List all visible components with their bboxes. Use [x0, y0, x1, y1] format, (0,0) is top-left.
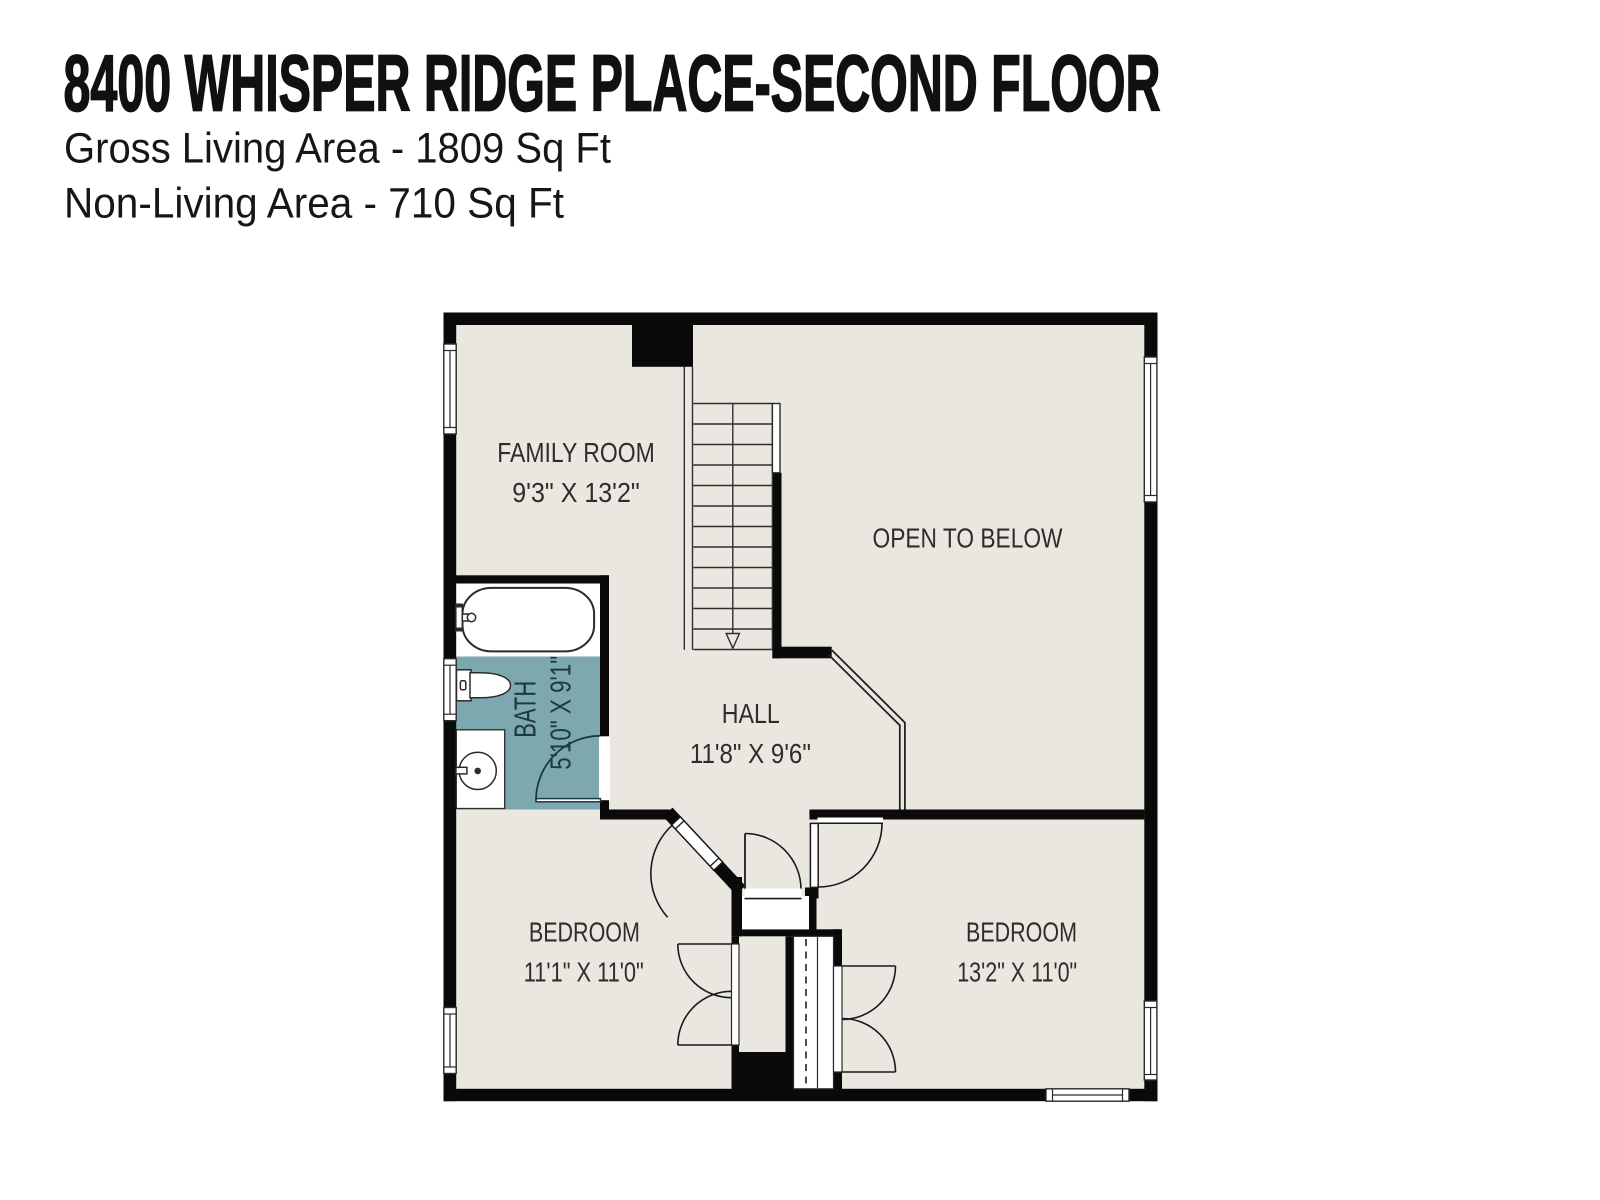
svg-text:BEDROOM: BEDROOM [529, 916, 640, 947]
svg-text:13'2" X 11'0": 13'2" X 11'0" [957, 956, 1077, 987]
svg-text:FAMILY ROOM: FAMILY ROOM [497, 437, 655, 468]
svg-text:BEDROOM: BEDROOM [966, 916, 1077, 947]
svg-text:BATH: BATH [508, 681, 543, 738]
svg-text:OPEN TO BELOW: OPEN TO BELOW [873, 523, 1063, 554]
svg-text:8400 WHISPER RIDGE PLACE-SECON: 8400 WHISPER RIDGE PLACE-SECOND FLOOR [64, 39, 1161, 128]
svg-text:9'3" X 13'2": 9'3" X 13'2" [512, 477, 640, 508]
svg-text:Gross Living Area - 1809 Sq Ft: Gross Living Area - 1809 Sq Ft [64, 125, 611, 173]
svg-text:11'8" X 9'6": 11'8" X 9'6" [690, 738, 811, 769]
svg-text:5'10" X 9'1": 5'10" X 9'1" [546, 656, 578, 770]
svg-text:HALL: HALL [722, 698, 780, 729]
svg-text:11'1" X 11'0": 11'1" X 11'0" [524, 956, 644, 987]
svg-text:Non-Living Area - 710 Sq Ft: Non-Living Area - 710 Sq Ft [64, 180, 564, 228]
